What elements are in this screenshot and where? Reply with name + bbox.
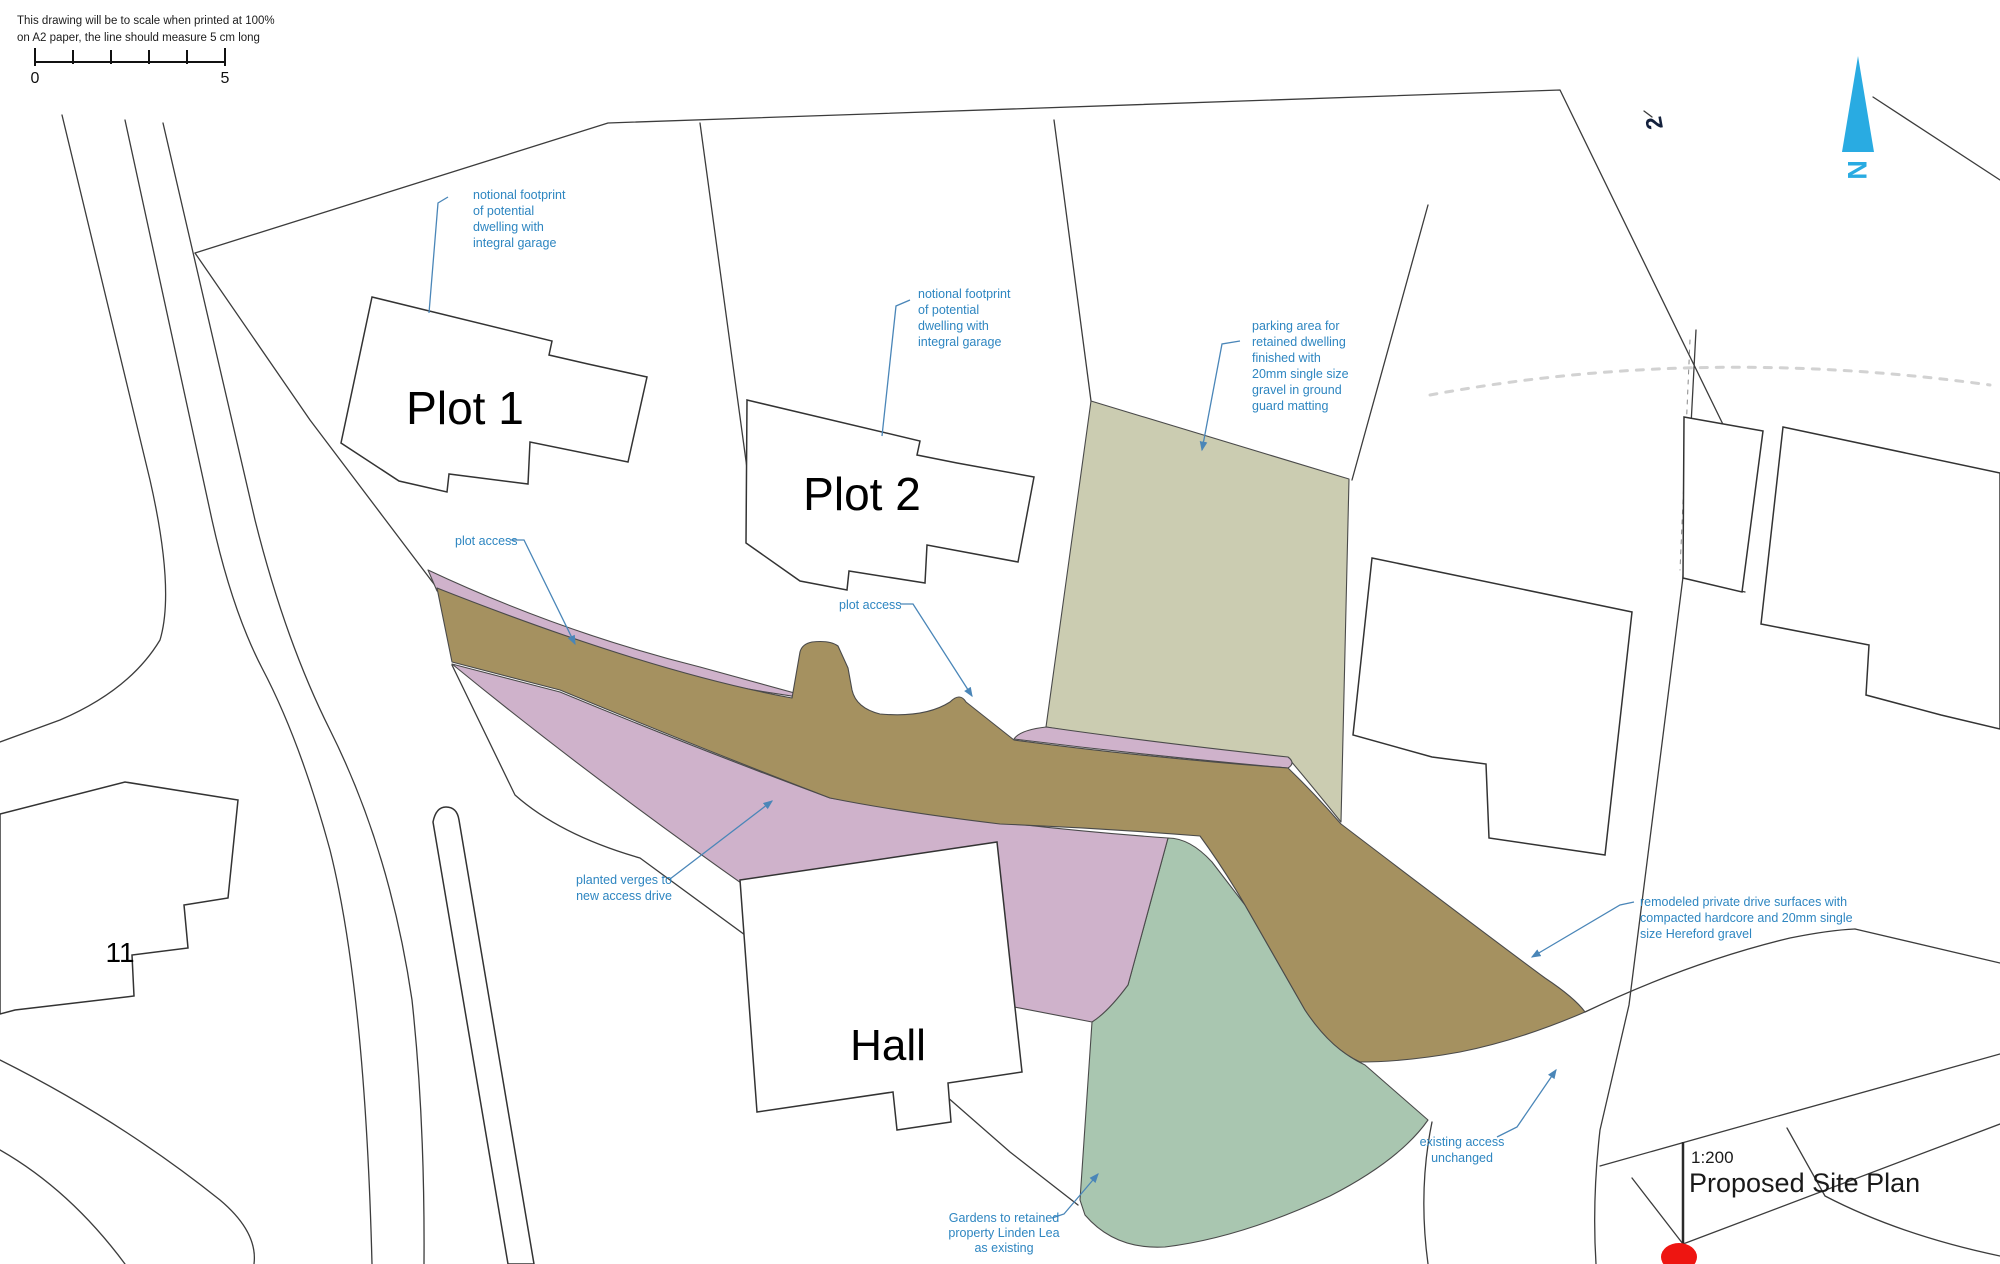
north-label: N xyxy=(1842,160,1872,180)
scale-note-line1: This drawing will be to scale when print… xyxy=(17,15,275,27)
leader-remodeled xyxy=(1532,902,1634,957)
scale-bar xyxy=(35,48,225,66)
plot2-footprint-note: dwelling with xyxy=(918,319,989,333)
retained-dwelling-footprint xyxy=(1353,558,1632,855)
plot-access-note-1: plot access xyxy=(455,534,518,548)
north-arrow: N xyxy=(1842,56,1874,180)
house12-label: 2 xyxy=(1640,115,1668,132)
garage-footprint xyxy=(1683,417,1763,592)
hall-building-footprint xyxy=(740,842,1022,1130)
parcel-line-plot1-plot2 xyxy=(700,123,752,505)
verges-note: planted verges to xyxy=(576,873,672,887)
plot-access-note-2: plot access xyxy=(839,598,902,612)
road-edge-3 xyxy=(163,123,424,1264)
remodeled-drive-note: size Hereford gravel xyxy=(1640,927,1752,941)
leader-existing-access xyxy=(1497,1070,1556,1137)
gardens-note: property Linden Lea xyxy=(948,1226,1059,1240)
plot1-footprint-note: notional footprint xyxy=(473,188,566,202)
road-edge-1 xyxy=(0,115,166,742)
plot1-footprint-note: of potential xyxy=(473,204,534,218)
site-plan-drawing: notional footprint of potential dwelling… xyxy=(0,0,2000,1264)
north-arrow-icon xyxy=(1842,56,1874,152)
parking-note: 20mm single size xyxy=(1252,367,1349,381)
verges-note: new access drive xyxy=(576,889,672,903)
plot2-footprint-note: of potential xyxy=(918,303,979,317)
scale-five-label: 5 xyxy=(221,70,230,87)
plot2-footprint-note: notional footprint xyxy=(918,287,1011,301)
plot1-label: Plot 1 xyxy=(406,382,524,434)
parking-note: retained dwelling xyxy=(1252,335,1346,349)
road-edge-2 xyxy=(125,120,372,1264)
kerb-arc-2 xyxy=(0,1150,125,1264)
hall-label: Hall xyxy=(850,1021,926,1070)
leader-plot-access-2 xyxy=(900,604,972,696)
gardens-note: as existing xyxy=(974,1241,1033,1255)
leader-parking xyxy=(1202,341,1240,450)
plot1-footprint-note: dwelling with xyxy=(473,220,544,234)
parcel-line-plot2-parking xyxy=(1054,120,1091,401)
title-block-scale: 1:200 xyxy=(1691,1148,1734,1167)
remodeled-drive-note: compacted hardcore and 20mm single xyxy=(1640,911,1853,925)
gardens-note: Gardens to retained xyxy=(949,1211,1060,1225)
scale-note-line2: on A2 paper, the line should measure 5 c… xyxy=(17,32,260,44)
site-linework xyxy=(0,90,2000,1264)
parking-note: guard matting xyxy=(1252,399,1328,413)
leader-plot1-footprint xyxy=(429,197,448,313)
boundary-se-2 xyxy=(1600,1054,2000,1166)
site-plan-canvas: notional footprint of potential dwelling… xyxy=(0,0,2000,1264)
plot2-label: Plot 2 xyxy=(803,468,921,520)
existing-access-note: existing access xyxy=(1420,1135,1505,1149)
parking-note: gravel in ground xyxy=(1252,383,1342,397)
lane-edge xyxy=(1585,929,1855,1012)
scale-bar-block: This drawing will be to scale when print… xyxy=(17,15,275,87)
plot2-footprint-note: integral garage xyxy=(918,335,1001,349)
parking-note: finished with xyxy=(1252,351,1321,365)
hedge-strip xyxy=(433,807,534,1264)
parcel-line-parking-north xyxy=(1352,205,1428,480)
house11-building-footprint xyxy=(0,782,238,1014)
site-marker-icon xyxy=(1661,1243,1697,1264)
hedge-texture xyxy=(1430,367,1990,395)
neighbour-building-footprint xyxy=(1761,427,2000,729)
remodeled-drive-note: remodeled private drive surfaces with xyxy=(1640,895,1847,909)
leader-plot2-footprint xyxy=(882,300,910,436)
title-block-title: Proposed Site Plan xyxy=(1689,1168,1920,1198)
parking-note: parking area for xyxy=(1252,319,1340,333)
lane-edge-2 xyxy=(1855,929,2000,963)
boundary-northeast xyxy=(1873,97,2000,180)
kerb-arc-1 xyxy=(0,1060,254,1264)
scale-zero-label: 0 xyxy=(31,70,40,87)
house12-tick xyxy=(1644,111,1652,117)
existing-access-note: unchanged xyxy=(1431,1151,1493,1165)
plot1-footprint-note: integral garage xyxy=(473,236,556,250)
house11-label: 11 xyxy=(105,937,134,968)
